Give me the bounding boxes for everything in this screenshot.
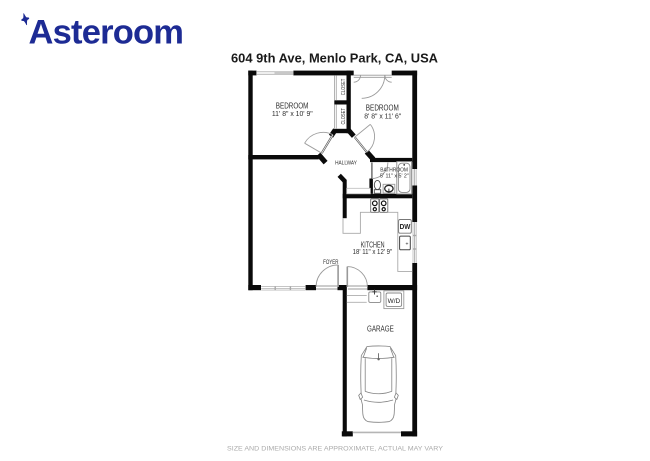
svg-text:+: + bbox=[406, 242, 409, 248]
svg-text:8' 8" x 11' 6": 8' 8" x 11' 6" bbox=[364, 114, 401, 121]
svg-text:18' 11" x 12' 9": 18' 11" x 12' 9" bbox=[353, 249, 393, 256]
svg-text:CLOSET: CLOSET bbox=[341, 78, 347, 95]
svg-text:604 9th Ave, Menlo Park, CA, U: 604 9th Ave, Menlo Park, CA, USA bbox=[231, 51, 439, 66]
svg-text:FOYER: FOYER bbox=[323, 259, 339, 266]
svg-text:11' 8" x 10' 9": 11' 8" x 10' 9" bbox=[272, 111, 313, 118]
svg-text:HALLWAY: HALLWAY bbox=[335, 160, 357, 166]
svg-text:CLOSET: CLOSET bbox=[341, 108, 347, 125]
svg-text:W/D: W/D bbox=[388, 298, 401, 305]
svg-text:DW: DW bbox=[400, 222, 411, 231]
svg-text:Asteroom: Asteroom bbox=[29, 14, 184, 52]
svg-text:BEDROOM: BEDROOM bbox=[366, 104, 399, 113]
svg-text:5' 11" x 5' 2": 5' 11" x 5' 2" bbox=[380, 174, 409, 180]
svg-text:GARAGE: GARAGE bbox=[367, 324, 394, 333]
svg-text:BEDROOM: BEDROOM bbox=[276, 102, 309, 111]
svg-text:SIZE AND DIMENSIONS ARE APPROX: SIZE AND DIMENSIONS ARE APPROXIMATE, ACT… bbox=[227, 446, 443, 453]
